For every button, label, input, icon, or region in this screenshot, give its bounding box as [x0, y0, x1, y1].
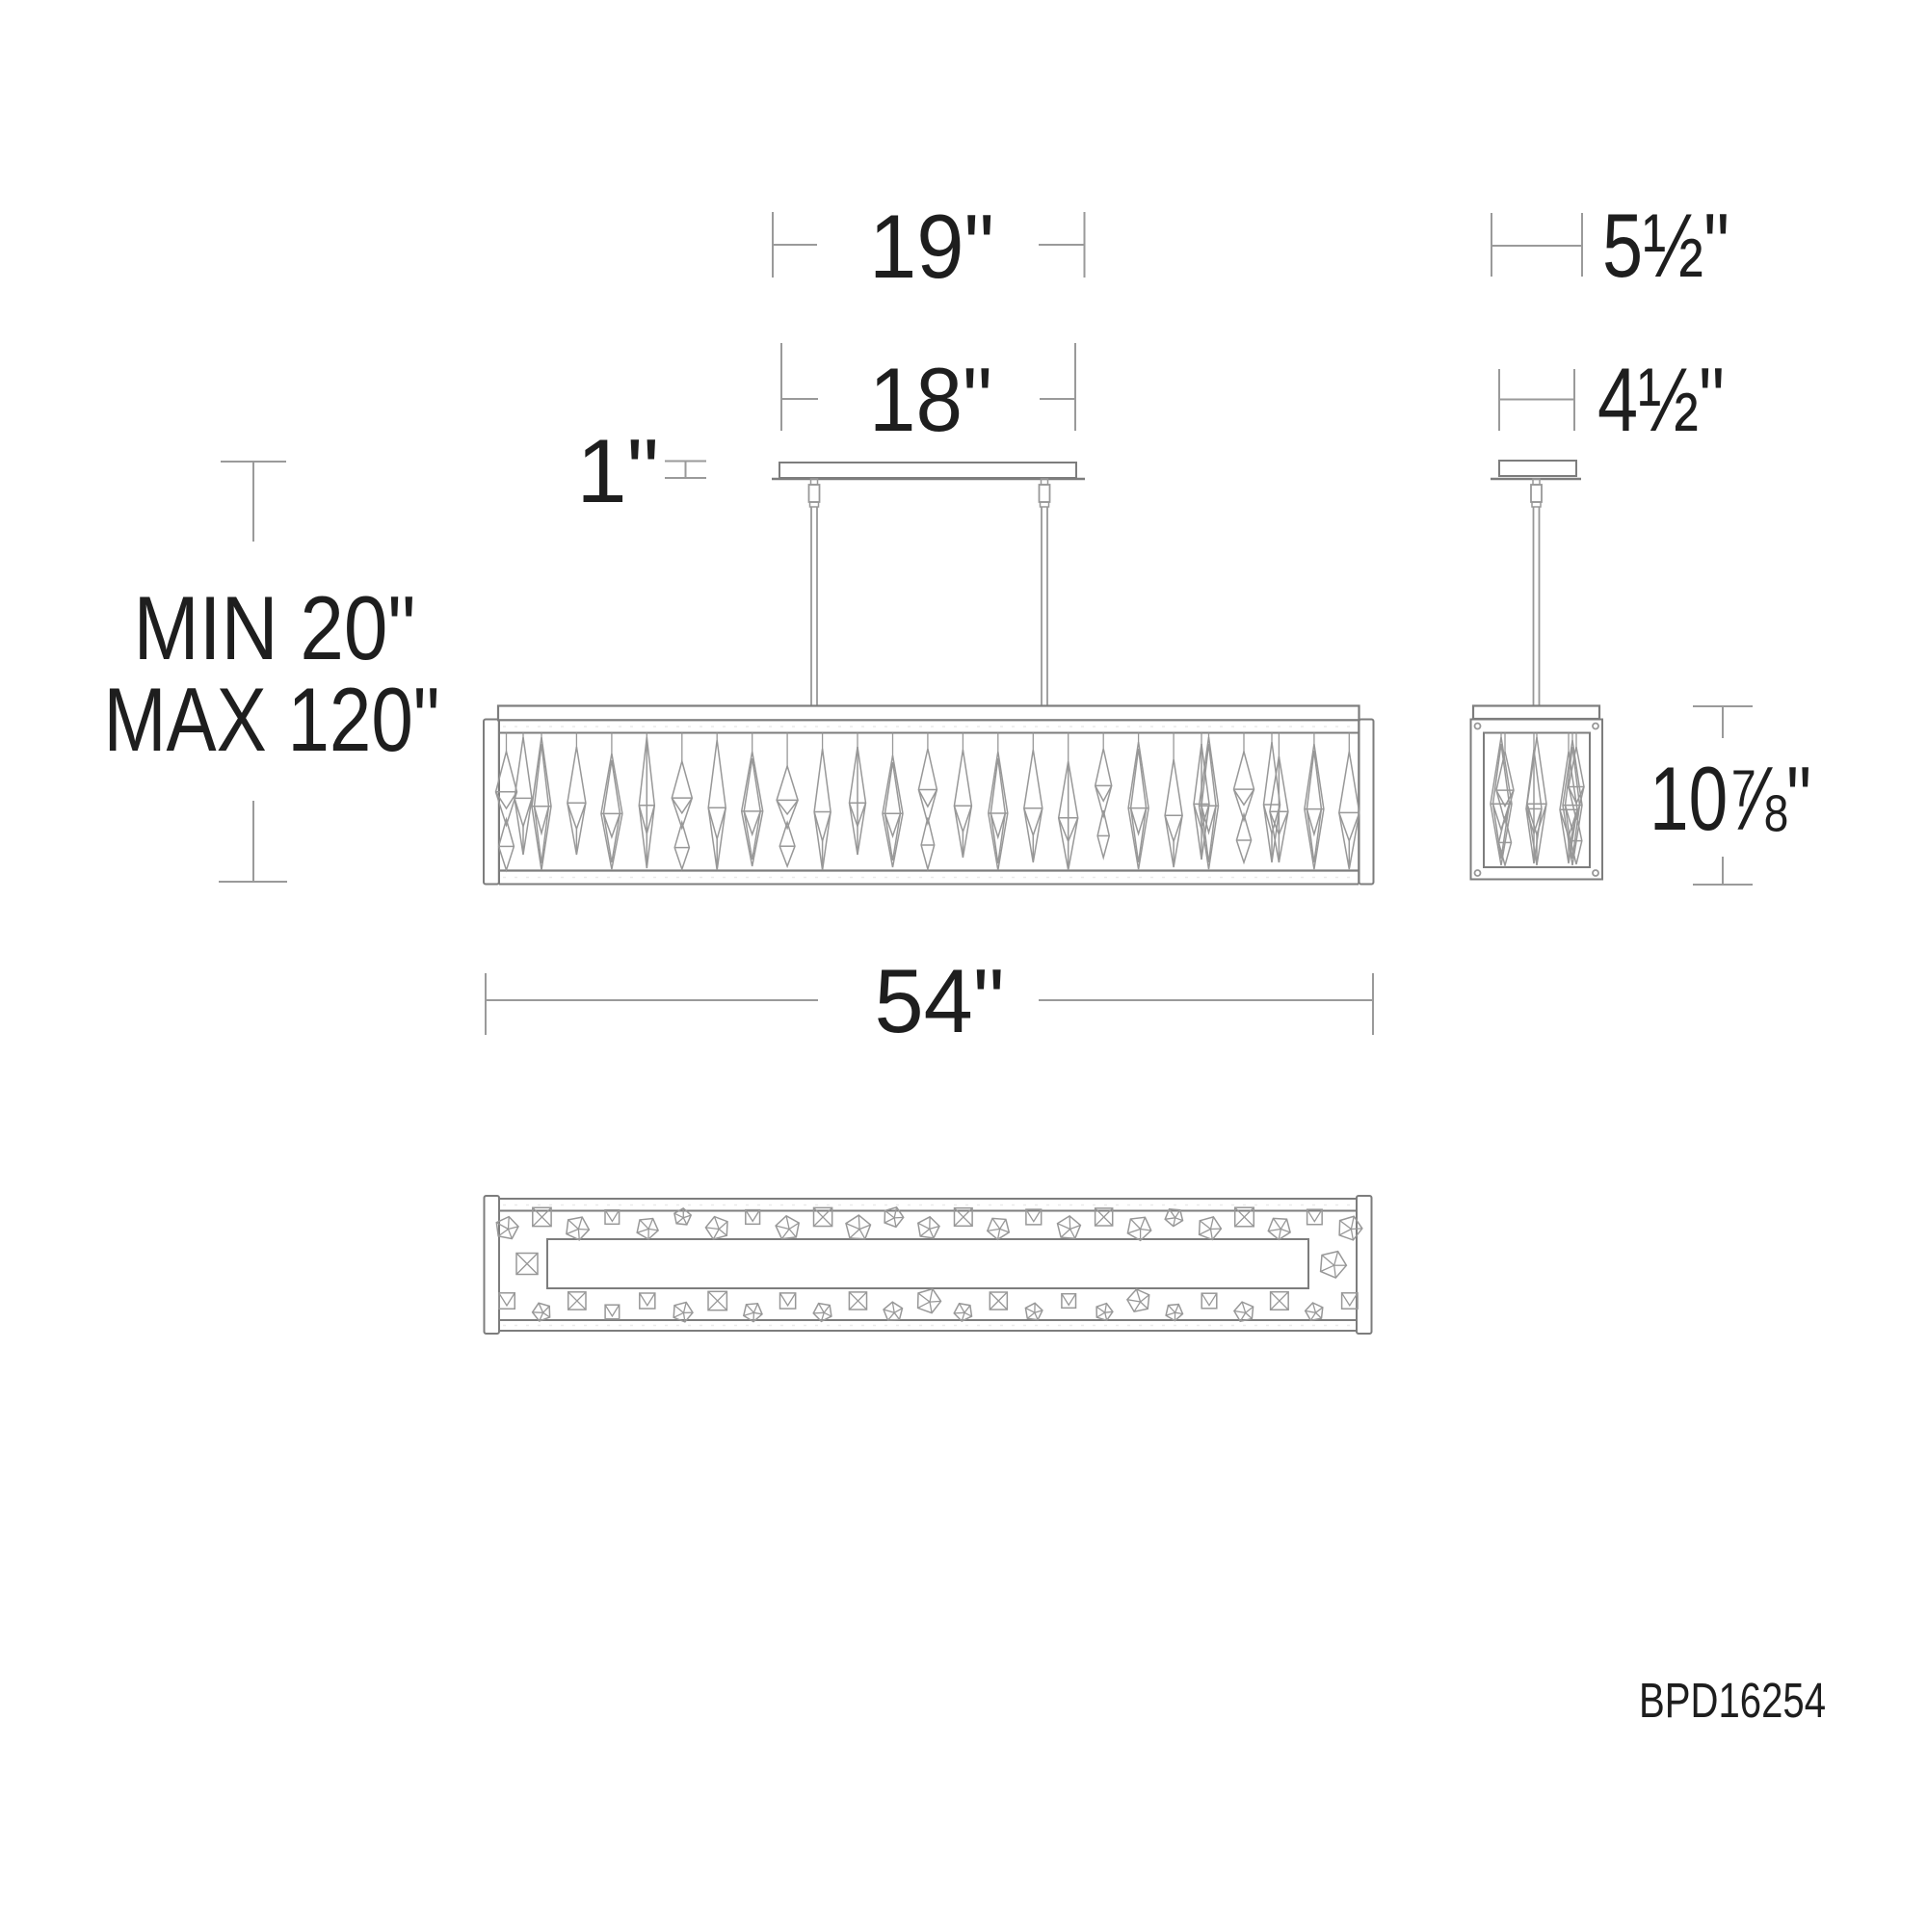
- svg-text:MAX 120": MAX 120": [104, 669, 440, 770]
- svg-text:19": 19": [869, 196, 994, 297]
- svg-text:MIN 20": MIN 20": [134, 577, 416, 678]
- svg-text:1": 1": [576, 420, 659, 521]
- svg-text:54": 54": [875, 950, 1005, 1051]
- svg-text:BPD16254: BPD16254: [1639, 1673, 1826, 1728]
- svg-text:18": 18": [869, 349, 992, 450]
- svg-text:5½": 5½": [1602, 195, 1729, 296]
- svg-text:10⅞": 10⅞": [1650, 748, 1811, 849]
- svg-text:4½": 4½": [1597, 349, 1725, 450]
